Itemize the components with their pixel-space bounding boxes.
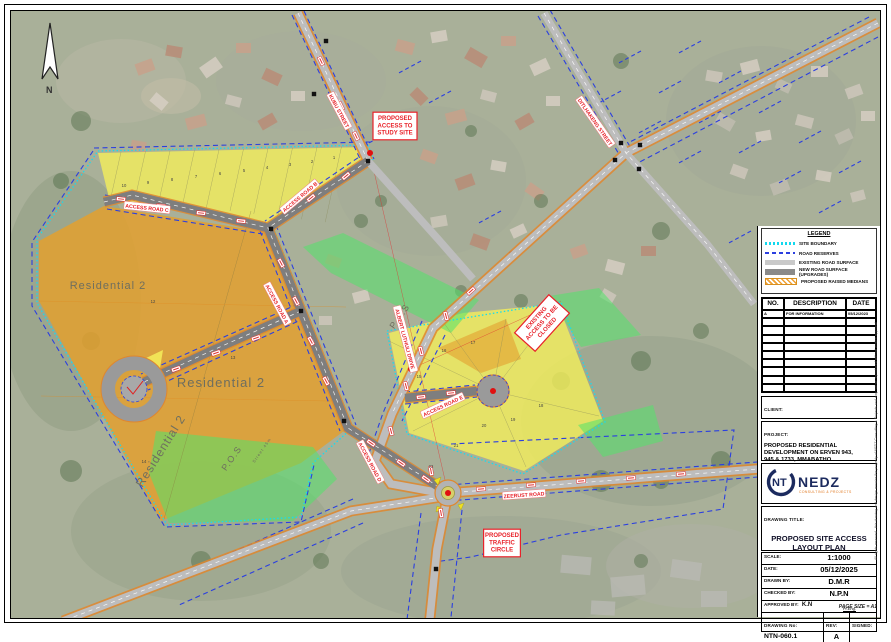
revision-cell: [762, 367, 784, 375]
revision-label: REV:: [826, 623, 838, 628]
legend-items: SITE BOUNDARYROAD RESERVESEXISTING ROAD …: [765, 239, 873, 287]
revision-cell: [784, 376, 846, 384]
lot-number: 14: [142, 459, 147, 464]
lot-number: 10: [122, 183, 127, 188]
drawing-title-line: PROPOSED SITE ACCESS: [764, 534, 874, 543]
field-label: SCALE:: [762, 553, 802, 564]
tree: [60, 460, 82, 482]
nedz-logo: NT NEDZ CONSULTING & PROJECTS: [765, 465, 873, 501]
page-size-note: PAGE SIZE = A1: [757, 604, 877, 610]
project-box: PROJECT: PROPOSED RESIDENTIAL DEVELOPMEN…: [761, 421, 877, 461]
junction-marker: [269, 227, 273, 231]
revision-row-empty: [762, 376, 876, 384]
building: [591, 600, 616, 615]
project-line: PROPOSED RESIDENTIAL: [764, 443, 874, 450]
legend-item: ROAD RESERVES: [765, 249, 873, 259]
revision-cell: [784, 367, 846, 375]
copyright-side-note: All rights reserved - this drawing and d…: [874, 290, 878, 560]
lot-number: 20: [482, 423, 487, 428]
lot-number: 22: [429, 464, 434, 469]
revision-cell: [846, 367, 876, 375]
lot-number: 12: [151, 299, 156, 304]
field-row: DRAWN BY:D.M.R: [761, 576, 877, 589]
revision-row-empty: [762, 359, 876, 367]
project-text: PROPOSED RESIDENTIAL DEVELOPMENT ON ERVE…: [764, 443, 874, 464]
access-point-dot: [367, 150, 373, 156]
junction-marker: [613, 158, 617, 162]
junction-marker: [299, 309, 303, 313]
junction-marker: [342, 419, 346, 423]
legend-item-label: PROPOSED RAISED MEDIANS: [801, 279, 868, 284]
drawing-title-box: DRAWING TITLE: PROPOSED SITE ACCESS LAYO…: [761, 506, 877, 551]
chainage-tick: [118, 199, 124, 200]
chainage-tick: [238, 221, 244, 222]
lot-number: 18: [539, 403, 544, 408]
building: [236, 43, 251, 53]
field-label: CHECKED BY:: [762, 589, 802, 600]
lot-number: 17: [471, 340, 476, 345]
revision-cell: [784, 343, 846, 351]
lot-number: 16: [442, 348, 447, 353]
tree: [634, 554, 648, 568]
field-value: 1:1000: [802, 553, 876, 564]
lot-number: 15: [417, 374, 422, 379]
junction-marker: [637, 167, 641, 171]
revision-header-cell: DATE: [846, 298, 876, 310]
revision-cell: [784, 318, 846, 326]
building: [701, 591, 727, 607]
legend-item-label: ROAD RESERVES: [799, 251, 839, 256]
logo-name: NEDZ: [798, 474, 840, 490]
field-row: DATE:05/12/2025: [761, 564, 877, 577]
building: [501, 36, 516, 46]
drawing-title-label: DRAWING TITLE:: [764, 517, 805, 522]
drawing-sheet: Residential 2Residential 2Residential 2P…: [0, 0, 891, 627]
revision-cell: [846, 351, 876, 359]
project-label: PROJECT:: [764, 432, 788, 437]
access-point-dot: [490, 388, 496, 394]
chainage-tick: [198, 213, 204, 214]
revision-cell: [762, 384, 784, 392]
junction-marker: [312, 92, 316, 96]
logo-subtitle: CONSULTING & PROJECTS: [799, 490, 852, 494]
revision-row: AFOR INFORMATION05/12/2023: [762, 310, 876, 318]
legend-title: LEGEND: [765, 231, 873, 237]
building: [641, 246, 656, 256]
revision-cell: [846, 376, 876, 384]
revision-cell: FOR INFORMATION: [784, 310, 846, 318]
revision-cell: [762, 376, 784, 384]
drawing-number-row: DRAWING No: NTN-060.1 REV: A SIGNED:: [761, 612, 877, 632]
field-value: N.P.N: [802, 589, 876, 600]
junction-marker: [619, 141, 623, 145]
revision-header-cell: DESCRIPTION: [784, 298, 846, 310]
revision-cell: [784, 359, 846, 367]
tree: [693, 323, 709, 339]
company-logo: NT NEDZ CONSULTING & PROJECTS: [761, 463, 877, 504]
field-value: 05/12/2025: [802, 565, 876, 576]
revision-cell: [846, 359, 876, 367]
signed-label: SIGNED:: [852, 623, 873, 628]
building: [610, 575, 646, 598]
revision-table: NO.DESCRIPTIONDATEAFOR INFORMATION05/12/…: [761, 297, 877, 393]
revision-header: NO.DESCRIPTIONDATE: [762, 298, 876, 310]
revision-row-empty: [762, 367, 876, 375]
revision-row-empty: [762, 343, 876, 351]
building: [291, 91, 305, 101]
roundabout: [101, 356, 167, 422]
revision-cell: [784, 384, 846, 392]
tree: [613, 53, 629, 69]
project-line: DEVELOPMENT ON ERVEN 943,: [764, 450, 874, 457]
revision-cell: [762, 335, 784, 343]
area-label: Residential 2: [70, 280, 147, 292]
revision-row-empty: [762, 351, 876, 359]
field-row: SCALE:1:1000: [761, 552, 877, 565]
revision-row-empty: [762, 318, 876, 326]
signed-cell: SIGNED:: [850, 613, 876, 642]
lot-number: 21: [454, 443, 459, 448]
revision-cell: [762, 326, 784, 334]
lot-number: 13: [231, 355, 236, 360]
blue-dashed-swatch: [765, 252, 795, 254]
building: [319, 316, 332, 325]
revision-cell: [762, 359, 784, 367]
tree: [465, 125, 477, 137]
logo-nt: NT: [772, 477, 787, 489]
tree: [53, 173, 69, 189]
drawing-number-cell: DRAWING No: NTN-060.1: [762, 613, 824, 642]
revision-cell: [846, 318, 876, 326]
tree: [514, 294, 528, 308]
client-box: CLIENT:: [761, 396, 877, 419]
legend-item-label: EXISTING ROAD SURFACE: [799, 260, 858, 265]
building: [811, 66, 828, 77]
revision-row-empty: [762, 384, 876, 392]
site-plan-map: Residential 2Residential 2Residential 2P…: [10, 10, 881, 619]
revision-cell: A: [762, 310, 784, 318]
revision-cell: [846, 384, 876, 392]
drawing-title-line: LAYOUT PLAN: [764, 543, 874, 552]
access-point-dot: [445, 490, 451, 496]
revision-header-cell: NO.: [762, 298, 784, 310]
revision-cell: [762, 351, 784, 359]
revision-cell: [784, 351, 846, 359]
cyan-dotted-swatch: [765, 242, 795, 245]
orange-hatch-swatch: [765, 278, 797, 285]
revision-value: A: [826, 632, 847, 641]
tree: [534, 194, 548, 208]
junction-marker: [638, 143, 642, 147]
svg-text:PROPOSEDACCESS TOSTUDY SITE: PROPOSEDACCESS TOSTUDY SITE: [377, 116, 412, 136]
legend-item-label: NEW ROAD SURFACE (UPGRADES): [799, 267, 873, 277]
drawing-title: PROPOSED SITE ACCESS LAYOUT PLAN: [764, 534, 874, 552]
field-label: DRAWN BY:: [762, 577, 802, 588]
legend: LEGEND SITE BOUNDARYROAD RESERVESEXISTIN…: [761, 228, 877, 294]
area-label: Residential 2: [177, 375, 265, 390]
building: [546, 96, 560, 106]
title-block: LEGEND SITE BOUNDARYROAD RESERVESEXISTIN…: [757, 226, 880, 617]
revision-cell: [762, 318, 784, 326]
field-value: D.M.R: [802, 577, 876, 588]
drawing-number-label: DRAWING No:: [764, 623, 797, 628]
gray-dark-swatch: [765, 269, 795, 275]
tree: [354, 214, 368, 228]
junction-marker: [324, 39, 328, 43]
gray-light-swatch: [765, 260, 795, 265]
revision-row-empty: [762, 335, 876, 343]
drawing-number-value: NTN-060.1: [764, 633, 821, 640]
revision-cell: 05/12/2023: [846, 310, 876, 318]
legend-item: SITE BOUNDARY: [765, 239, 873, 249]
building: [560, 555, 591, 576]
annotation-box: PROPOSEDTRAFFICCIRCLE: [484, 529, 521, 557]
legend-item: PROPOSED RAISED MEDIANS: [765, 277, 873, 287]
field-row: CHECKED BY:N.P.N: [761, 588, 877, 601]
revision-cell: [846, 326, 876, 334]
junction-marker: [434, 567, 438, 571]
revision-cell: [784, 335, 846, 343]
north-label: N: [46, 85, 53, 95]
tree: [631, 351, 651, 371]
client-label: CLIENT:: [764, 407, 783, 412]
junction-marker: [366, 159, 370, 163]
building: [861, 111, 875, 121]
annotation-box: PROPOSEDACCESS TOSTUDY SITE: [373, 112, 417, 140]
legend-item: NEW ROAD SURFACE (UPGRADES): [765, 268, 873, 278]
tree: [71, 111, 91, 131]
tree: [652, 222, 670, 240]
revision-cell: [784, 326, 846, 334]
revision-cell: [846, 335, 876, 343]
chainage-tick: [448, 393, 454, 394]
revision-cell: REV: A: [824, 613, 850, 642]
aerial-site-plan: Residential 2Residential 2Residential 2P…: [11, 11, 880, 618]
revision-cell: [846, 343, 876, 351]
legend-item-label: SITE BOUNDARY: [799, 241, 837, 246]
chainage-tick: [418, 397, 424, 398]
revision-cell: [762, 343, 784, 351]
legend-item: EXISTING ROAD SURFACE: [765, 258, 873, 268]
field-label: DATE:: [762, 565, 802, 576]
revision-row-empty: [762, 326, 876, 334]
lot-number: 19: [511, 417, 516, 422]
tree: [313, 553, 329, 569]
